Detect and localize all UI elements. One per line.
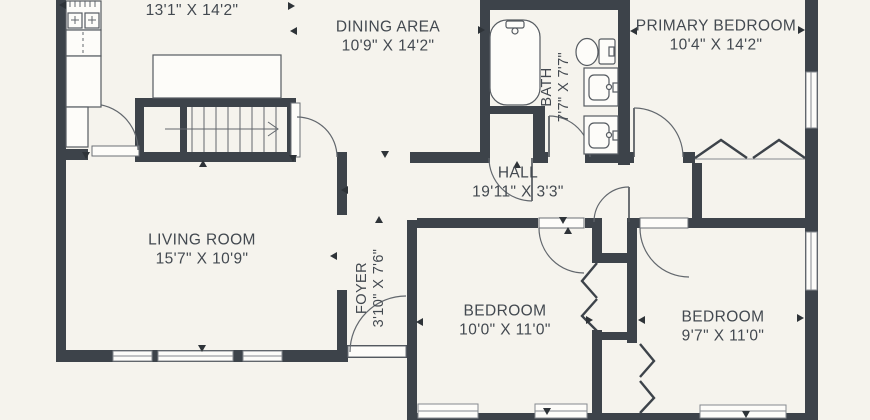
room-dims: 13'1" X 14'2" xyxy=(146,2,239,21)
room-label-kitchen: 13'1" X 14'2" xyxy=(146,2,239,21)
room-label-primary-bedroom: PRIMARY BEDROOM 10'4" X 14'2" xyxy=(636,18,796,55)
refrigerator-icon xyxy=(66,56,101,107)
room-label-hall: HALL 19'11" X 3'3" xyxy=(472,165,564,202)
kitchen-island xyxy=(153,55,281,98)
kitchen-counter xyxy=(66,107,88,147)
room-dims: 19'11" X 3'3" xyxy=(472,183,564,202)
front-door xyxy=(348,346,406,357)
room-label-foyer: FOYER 3'10" X 7'6" xyxy=(354,249,388,328)
room-name: HALL xyxy=(472,165,564,184)
kitchen-fixtures xyxy=(66,1,281,147)
room-dims: 7'7" X 7'7" xyxy=(556,52,573,122)
room-label-bath: BATH 7'7" X 7'7" xyxy=(539,52,573,122)
toilet-icon xyxy=(576,39,615,66)
room-label-bedroom-right: BEDROOM 9'7" X 11'0" xyxy=(682,309,765,346)
room-name: FOYER xyxy=(354,249,371,328)
vanity-sink-icon xyxy=(584,116,618,154)
room-label-dining-area: DINING AREA 10'9" X 14'2" xyxy=(336,19,440,56)
room-dims: 3'10" X 7'6" xyxy=(371,249,388,328)
floor-plan: 13'1" X 14'2" DINING AREA 10'9" X 14'2" … xyxy=(0,0,870,420)
kitchen-door xyxy=(92,146,139,156)
room-name: DINING AREA xyxy=(336,19,440,38)
dining-door xyxy=(291,103,300,157)
room-dims: 10'0" X 11'0" xyxy=(459,321,551,340)
room-label-bedroom-middle: BEDROOM 10'0" X 11'0" xyxy=(459,303,551,340)
floor-plan-drawing xyxy=(0,0,870,420)
room-label-living-room: LIVING ROOM 15'7" X 10'9" xyxy=(148,232,256,269)
room-name: BEDROOM xyxy=(459,303,551,322)
room-dims: 9'7" X 11'0" xyxy=(682,327,765,346)
room-dims: 15'7" X 10'9" xyxy=(148,250,256,269)
room-name: PRIMARY BEDROOM xyxy=(636,18,796,37)
vanity-sink-icon xyxy=(584,68,618,106)
room-dims: 10'4" X 14'2" xyxy=(636,36,796,55)
room-name: BATH xyxy=(539,52,556,122)
right-bedroom-door xyxy=(640,218,688,228)
room-dims: 10'9" X 14'2" xyxy=(336,37,440,56)
room-name: BEDROOM xyxy=(682,309,765,328)
room-name: LIVING ROOM xyxy=(148,232,256,251)
